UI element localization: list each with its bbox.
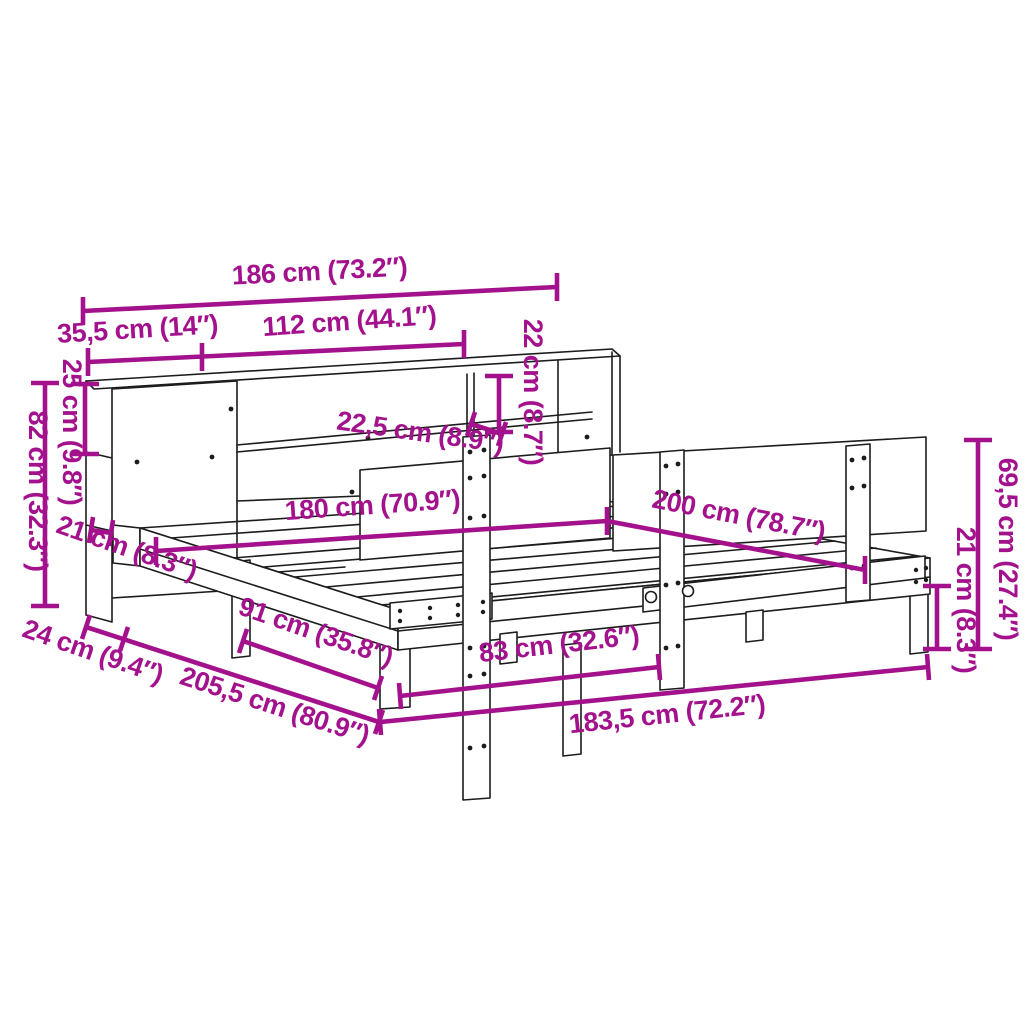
support-foot-2 bbox=[746, 610, 763, 642]
dim-leg-height: 21 cm (8.3″) bbox=[923, 527, 981, 674]
diagram-canvas: 186 cm (73.2″) 35,5 cm (14″) 112 cm (44.… bbox=[0, 0, 1024, 1024]
dim-label-headboard-height: 82 cm (32.3″) bbox=[23, 410, 53, 571]
dim-label-leg-height: 21 cm (8.3″) bbox=[951, 527, 981, 674]
dimension-line bbox=[485, 376, 513, 432]
dim-label-top-compartment-left: 25 cm (9.8″) bbox=[57, 359, 87, 506]
dim-label-frame-side-length: 183,5 cm (72.2″) bbox=[567, 689, 766, 739]
dim-label-headboard-width-total: 186 cm (73.2″) bbox=[231, 251, 408, 290]
bookcase-right-end bbox=[558, 352, 620, 462]
dim-label-middle-section-width: 112 cm (44.1″) bbox=[262, 300, 438, 342]
dim-label-left-section-width: 35,5 cm (14″) bbox=[56, 309, 219, 349]
knob-screw-2 bbox=[683, 586, 694, 597]
dim-label-top-compartment-right: 22 cm (8.7″) bbox=[518, 319, 548, 466]
knob-screw-1 bbox=[646, 592, 657, 603]
dim-label-backrest-total-height: 69,5 cm (27.4″) bbox=[993, 458, 1023, 641]
dim-headboard-height: 82 cm (32.3″) bbox=[23, 383, 59, 606]
dim-label-shelf-depth: 22,5 cm (8.9″) bbox=[335, 406, 506, 459]
bed-dimension-diagram: 186 cm (73.2″) 35,5 cm (14″) 112 cm (44.… bbox=[0, 0, 1024, 1024]
bookcase-left-strip bbox=[86, 381, 112, 622]
dim-shelf-depth: 22,5 cm (8.9″) bbox=[335, 406, 506, 459]
dim-label-headboard-depth: 24 cm (9.4″) bbox=[19, 613, 167, 689]
